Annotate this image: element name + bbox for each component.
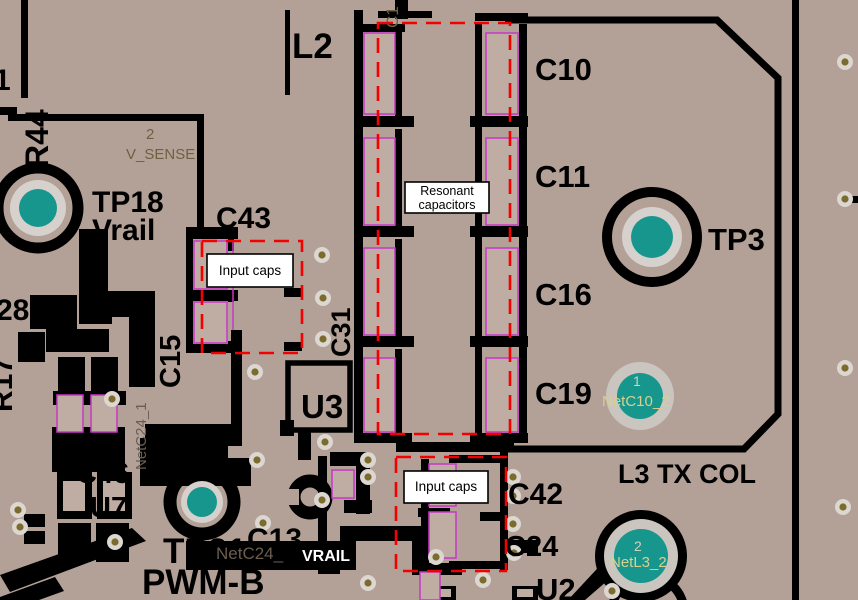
resonant-cap-pad — [364, 248, 395, 335]
vrail-trace — [340, 526, 424, 541]
via — [104, 391, 120, 407]
ref-c31: C31 — [326, 307, 356, 357]
resonant-cap-pad — [364, 358, 395, 432]
cluster-pad — [57, 395, 83, 432]
net-netc24-1: NetC24_1 — [133, 402, 150, 470]
callout-text: Input caps — [219, 263, 282, 278]
ref-c46: C46 — [76, 458, 129, 490]
pin-number-2: 2 — [146, 126, 154, 143]
via — [314, 492, 330, 508]
tp3-hole — [631, 216, 673, 258]
net-netc10-2: NetC10_2 — [602, 393, 670, 410]
via — [505, 516, 521, 532]
net-vrail-tp18: Vrail — [92, 214, 155, 247]
component-footprint — [91, 357, 118, 393]
input-caps-bottom-callout: Input caps — [404, 471, 488, 503]
pin-number-1: 1 — [633, 373, 641, 389]
cap-divider — [470, 226, 528, 237]
pad-window — [517, 589, 533, 597]
pin-number-2b: 2 — [634, 538, 642, 554]
ref-c16: C16 — [535, 277, 592, 312]
input-caps-top-callout: Input caps — [207, 254, 293, 287]
cap-divider — [354, 336, 414, 347]
cap-divider — [470, 116, 528, 127]
cap-outline — [395, 27, 402, 116]
horseshoe-opening — [285, 489, 299, 505]
ref-r17-partial: R17 — [0, 357, 19, 412]
via — [317, 434, 333, 450]
ref-c19: C19 — [535, 376, 592, 411]
via — [475, 572, 491, 588]
via — [837, 191, 853, 207]
ref-r44: R44 — [19, 109, 55, 168]
c43-pad — [194, 302, 227, 343]
trace — [396, 442, 514, 452]
ref-c11: C11 — [535, 159, 590, 194]
cap-outline — [395, 129, 402, 226]
resonant-cap-pad — [486, 138, 518, 225]
component-footprint — [79, 291, 112, 324]
via — [360, 469, 376, 485]
ref-c24: C24 — [505, 531, 558, 563]
trace — [21, 0, 28, 98]
via — [12, 519, 28, 535]
via — [315, 290, 331, 306]
trace — [298, 430, 311, 460]
ref-u3: U3 — [301, 388, 343, 425]
callout-text-line2: capacitors — [419, 198, 476, 212]
net-pwm-b: PWM-B — [142, 563, 264, 600]
net-v-sense: V_SENSE — [126, 146, 195, 163]
via — [107, 534, 123, 550]
via — [360, 575, 376, 591]
callout-text-line1: Resonant — [420, 184, 474, 198]
component-footprint — [46, 329, 109, 352]
cap-divider — [470, 336, 528, 347]
component-footprint — [30, 295, 77, 329]
c13-pad — [332, 470, 354, 498]
resonant-cap-pad — [364, 33, 395, 114]
ref-partial-1: 1 — [0, 64, 11, 97]
ref-u7: U7 — [90, 492, 127, 524]
component-footprint — [58, 357, 85, 393]
ref-partial-top: C1 — [383, 6, 402, 28]
ref-c10: C10 — [535, 52, 592, 87]
l2-line — [285, 10, 290, 95]
component-footprint — [24, 531, 45, 544]
cap-divider — [354, 226, 414, 237]
via — [10, 502, 26, 518]
component-footprint — [18, 332, 45, 362]
ref-c42: C42 — [508, 478, 563, 511]
cap-outline — [395, 239, 402, 336]
net-netc24-partial: NetC24_ — [216, 544, 284, 563]
via — [247, 364, 263, 380]
pcb-layout-canvas: 1 R44 TP18 Vrail C43 28 R17 C15 C46 U7 L… — [0, 0, 858, 600]
ref-r28-partial: 28 — [0, 294, 29, 327]
net-l3-tx-col: L3 TX COL — [618, 459, 756, 489]
cap-tick — [284, 288, 302, 297]
tp18-hole — [19, 189, 57, 227]
pad — [420, 572, 440, 600]
via — [249, 452, 265, 468]
pcb-layout-screenshot: 1 R44 TP18 Vrail C43 28 R17 C15 C46 U7 L… — [0, 0, 858, 600]
net-vrail: VRAIL — [302, 548, 350, 565]
via — [428, 549, 444, 565]
callout-text: Input caps — [415, 479, 478, 494]
via — [604, 583, 620, 599]
ref-tp3: TP3 — [708, 222, 765, 257]
resonant-cap-pad — [486, 33, 518, 114]
ref-l2: L2 — [292, 27, 333, 66]
resonant-capacitors-callout: Resonant capacitors — [405, 182, 489, 213]
via — [837, 54, 853, 70]
trace — [129, 291, 155, 387]
trace — [197, 121, 204, 233]
trace — [280, 420, 294, 436]
trace — [792, 0, 799, 600]
ref-c43: C43 — [216, 202, 271, 235]
cap-tick — [480, 512, 502, 521]
cap-outline — [395, 349, 402, 433]
cap-tick — [284, 342, 302, 351]
via — [837, 360, 853, 376]
component-footprint — [344, 500, 372, 513]
via — [314, 247, 330, 263]
trace — [0, 107, 17, 115]
resonant-cap-pad — [486, 358, 518, 432]
trace — [231, 330, 242, 426]
tp21-hole — [187, 487, 217, 517]
ref-u2-partial: U2 — [536, 572, 576, 600]
via — [835, 499, 851, 515]
via — [360, 452, 376, 468]
ref-c15: C15 — [155, 335, 187, 388]
resonant-cap-pad — [364, 138, 395, 225]
resonant-cap-pad — [486, 248, 518, 335]
cap-divider — [354, 116, 414, 127]
net-netl3-2: NetL3_2 — [610, 554, 667, 571]
